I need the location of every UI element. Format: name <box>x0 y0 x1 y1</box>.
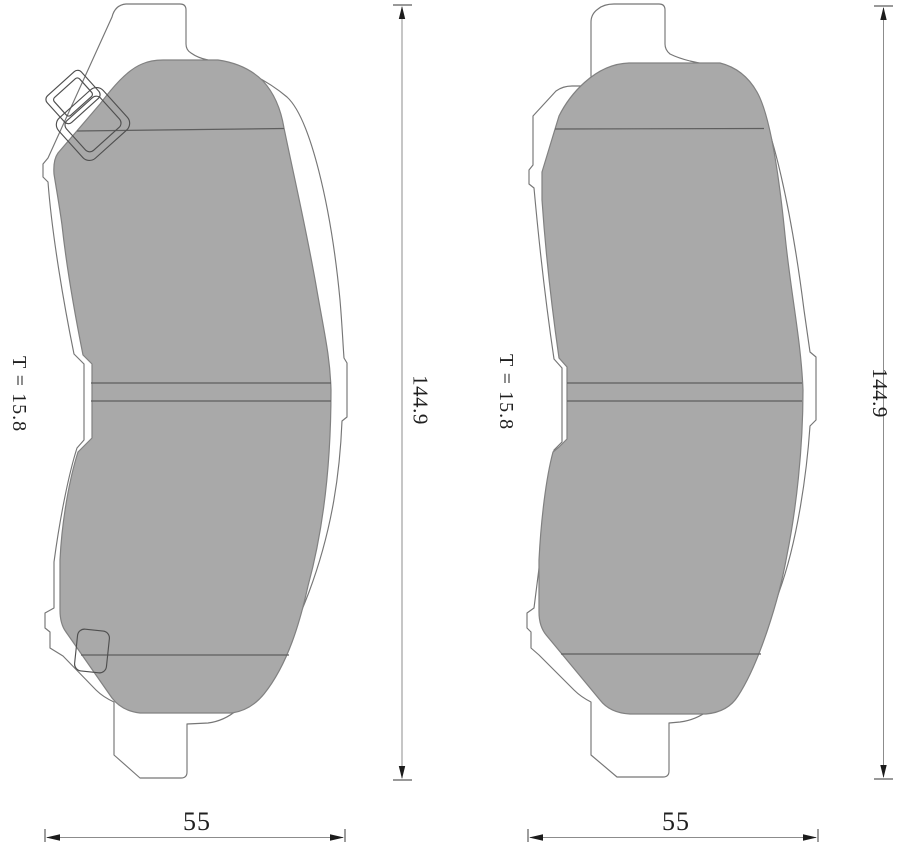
right-thickness-label: T = 15.8 <box>495 354 517 430</box>
right-top-chamfer-line <box>555 129 764 130</box>
up-arrowhead-icon <box>399 6 405 19</box>
left-thickness-label: T = 15.8 <box>8 356 30 432</box>
left-width-dimension: 55 <box>45 807 345 842</box>
right-height-dimension: 144.9 <box>868 6 893 779</box>
brake-pad-diagram: T = 15.8 144.9 55 T = 15.8 <box>0 0 900 842</box>
down-arrowhead-icon <box>880 765 886 778</box>
right-friction-material <box>539 63 803 714</box>
left-pad-view: T = 15.8 144.9 55 <box>8 4 433 842</box>
technical-drawing-page: T = 15.8 144.9 55 T = 15.8 <box>0 0 900 842</box>
right-width-value: 55 <box>662 807 690 836</box>
right-height-value: 144.9 <box>868 368 892 418</box>
left-arrowhead-icon <box>46 834 60 840</box>
left-height-value: 144.9 <box>409 375 433 425</box>
left-arrowhead-icon <box>529 834 543 840</box>
down-arrowhead-icon <box>399 766 405 779</box>
right-pad-view: T = 15.8 144.9 55 <box>495 4 893 842</box>
right-arrowhead-icon <box>330 834 344 840</box>
right-width-dimension: 55 <box>528 807 818 842</box>
left-width-value: 55 <box>183 807 211 836</box>
up-arrowhead-icon <box>880 7 886 20</box>
right-arrowhead-icon <box>803 834 817 840</box>
left-height-dimension: 144.9 <box>393 5 433 780</box>
